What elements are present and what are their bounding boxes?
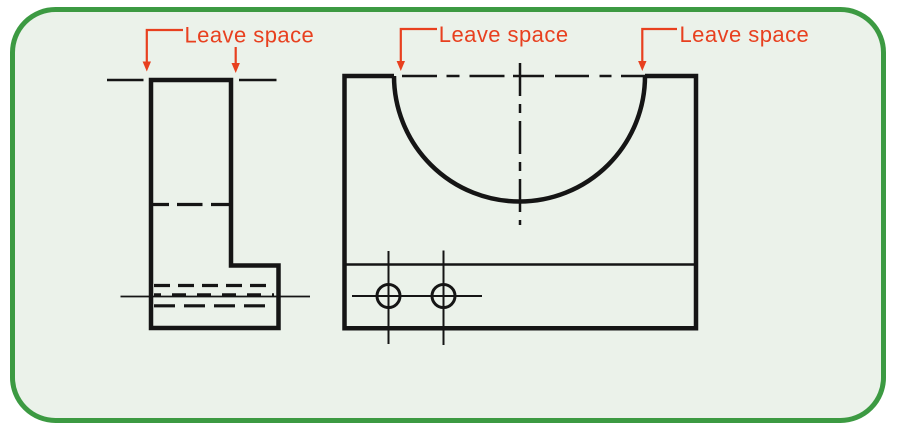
svg-text:Leave space: Leave space xyxy=(680,22,810,47)
svg-text:Leave space: Leave space xyxy=(185,22,315,47)
svg-text:Leave space: Leave space xyxy=(439,22,569,47)
